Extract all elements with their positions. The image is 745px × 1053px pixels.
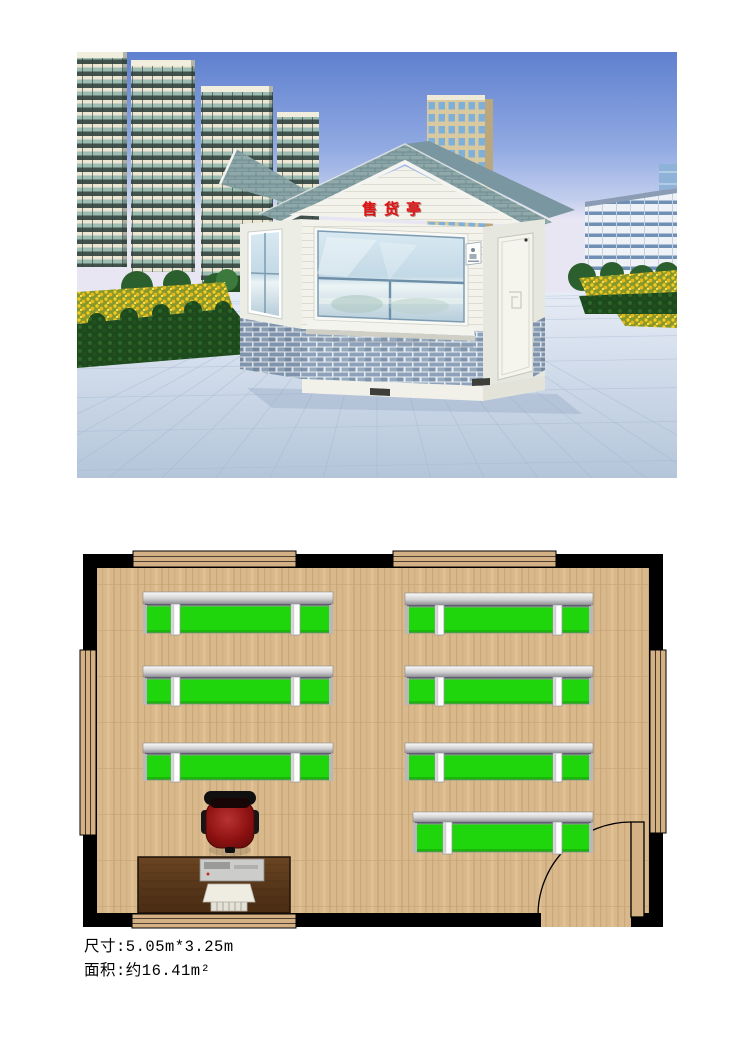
kiosk-render-scene: 售货亭 售货亭 (77, 52, 677, 478)
floorplan-diagram (83, 554, 663, 927)
document-page: 售货亭 售货亭 (0, 0, 745, 1053)
door-opening (541, 912, 631, 927)
shelf (405, 666, 593, 706)
window-symbol (650, 650, 666, 833)
desk (138, 857, 290, 913)
door-leaf (631, 822, 644, 917)
shelf (405, 593, 593, 635)
shelf (143, 743, 333, 782)
shelf (143, 592, 333, 635)
size-spec: 尺寸:5.05m*3.25m (84, 935, 234, 959)
window-symbol (133, 551, 296, 567)
window-symbol (80, 650, 96, 835)
shelf (143, 666, 333, 706)
window-symbol (132, 914, 296, 928)
window-symbol (393, 551, 556, 567)
flower-bed-left (77, 282, 249, 368)
spec-text-block: 尺寸:5.05m*3.25m 面积:约16.41m² (84, 935, 234, 983)
floorplan-svg (83, 554, 663, 927)
kiosk-photo: 售货亭 售货亭 (77, 52, 677, 478)
area-spec: 面积:约16.41m² (84, 959, 234, 983)
shelf (413, 812, 593, 854)
shelf (405, 743, 593, 782)
kiosk-sign-text: 售货亭 (362, 200, 428, 218)
stool (203, 884, 255, 902)
